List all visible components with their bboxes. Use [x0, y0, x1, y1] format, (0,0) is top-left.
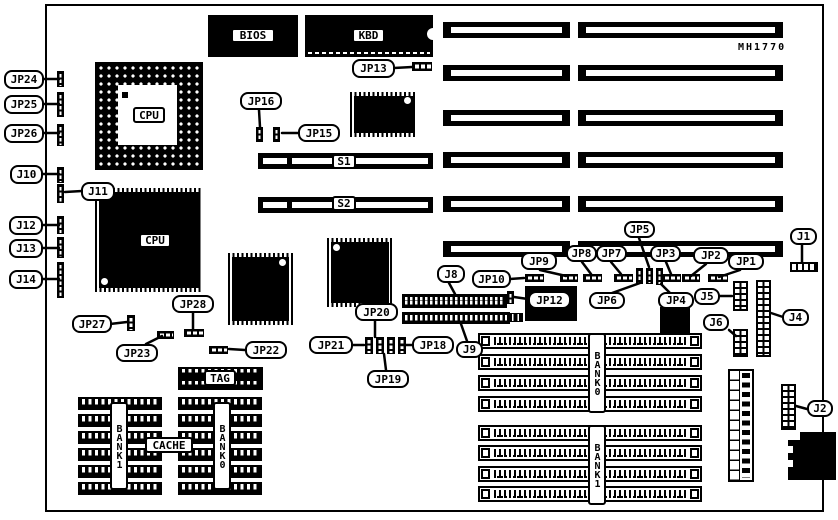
- callout-jp27: JP27: [72, 315, 112, 333]
- callout-j12: J12: [9, 216, 43, 235]
- callout-jp6: JP6: [589, 292, 625, 309]
- callout-jp8: JP8: [566, 245, 597, 262]
- callout-jp13: JP13: [352, 59, 395, 78]
- callout-jp18: JP18: [412, 336, 454, 354]
- callout-jp15: JP15: [298, 124, 340, 142]
- callout-j4: J4: [782, 309, 809, 326]
- callout-j14: J14: [9, 270, 43, 289]
- callout-jp5: JP5: [624, 221, 655, 238]
- callout-jp26: JP26: [4, 124, 44, 143]
- callout-jp3: JP3: [650, 245, 681, 262]
- callout-j2: J2: [807, 400, 833, 417]
- callout-jp2: JP2: [693, 247, 729, 264]
- motherboard-diagram: MH1770 BIOS KBD CPU CPU S1 S2: [0, 0, 838, 520]
- callout-jp10: JP10: [472, 270, 511, 288]
- callout-j6: J6: [703, 314, 729, 331]
- callout-jp22: JP22: [245, 341, 287, 359]
- callout-jp1: JP1: [728, 253, 764, 270]
- callout-jp9: JP9: [521, 252, 557, 270]
- callout-jp16: JP16: [240, 92, 282, 110]
- callout-j9: J9: [456, 341, 483, 358]
- callout-jp20: JP20: [355, 303, 398, 321]
- callout-j13: J13: [9, 239, 43, 258]
- callout-jp23: JP23: [116, 344, 158, 362]
- callout-jp21: JP21: [309, 336, 353, 354]
- callout-j8: J8: [437, 265, 465, 283]
- callout-jp19: JP19: [367, 370, 409, 388]
- callout-jp7: JP7: [596, 245, 627, 262]
- callout-jp25: JP25: [4, 95, 44, 114]
- callout-j11: J11: [81, 182, 115, 201]
- callout-j1: J1: [790, 228, 817, 245]
- callout-jp24: JP24: [4, 70, 44, 89]
- callout-jp4: JP4: [658, 292, 694, 309]
- callout-j10: J10: [10, 165, 43, 184]
- callout-jp28: JP28: [172, 295, 214, 313]
- callout-j5: J5: [694, 288, 720, 305]
- callout-jp12: JP12: [528, 291, 571, 309]
